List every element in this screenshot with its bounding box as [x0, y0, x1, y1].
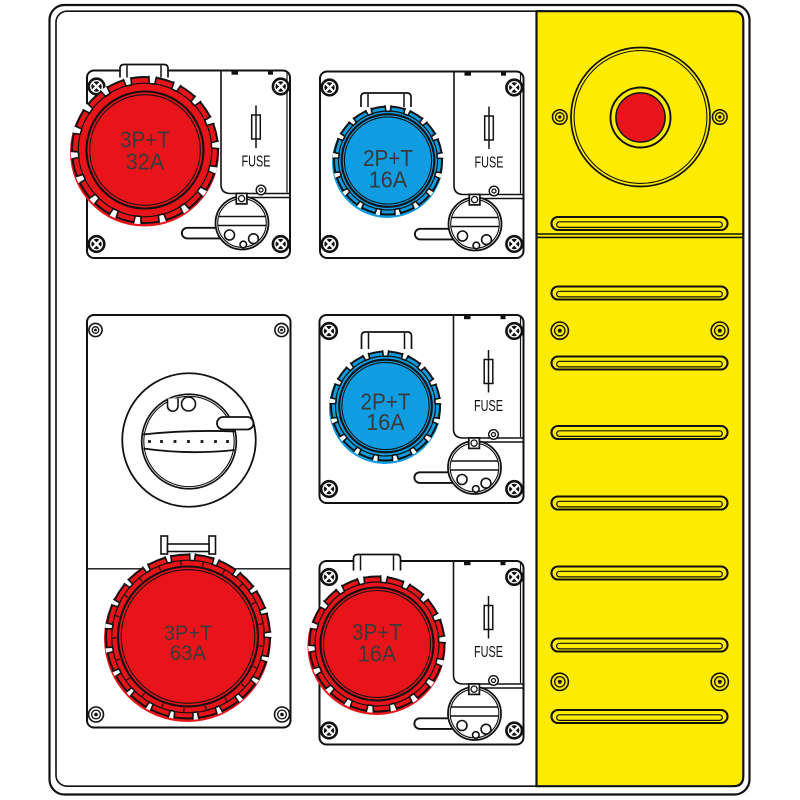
svg-text:FUSE: FUSE [242, 154, 271, 171]
svg-text:32A: 32A [126, 148, 165, 174]
svg-text:16A: 16A [366, 409, 405, 435]
svg-text:16A: 16A [369, 166, 408, 192]
svg-text:16A: 16A [358, 641, 397, 667]
svg-text:FUSE: FUSE [474, 398, 503, 415]
svg-text:FUSE: FUSE [475, 155, 504, 172]
svg-text:FUSE: FUSE [474, 644, 503, 661]
svg-text:63A: 63A [170, 642, 207, 665]
